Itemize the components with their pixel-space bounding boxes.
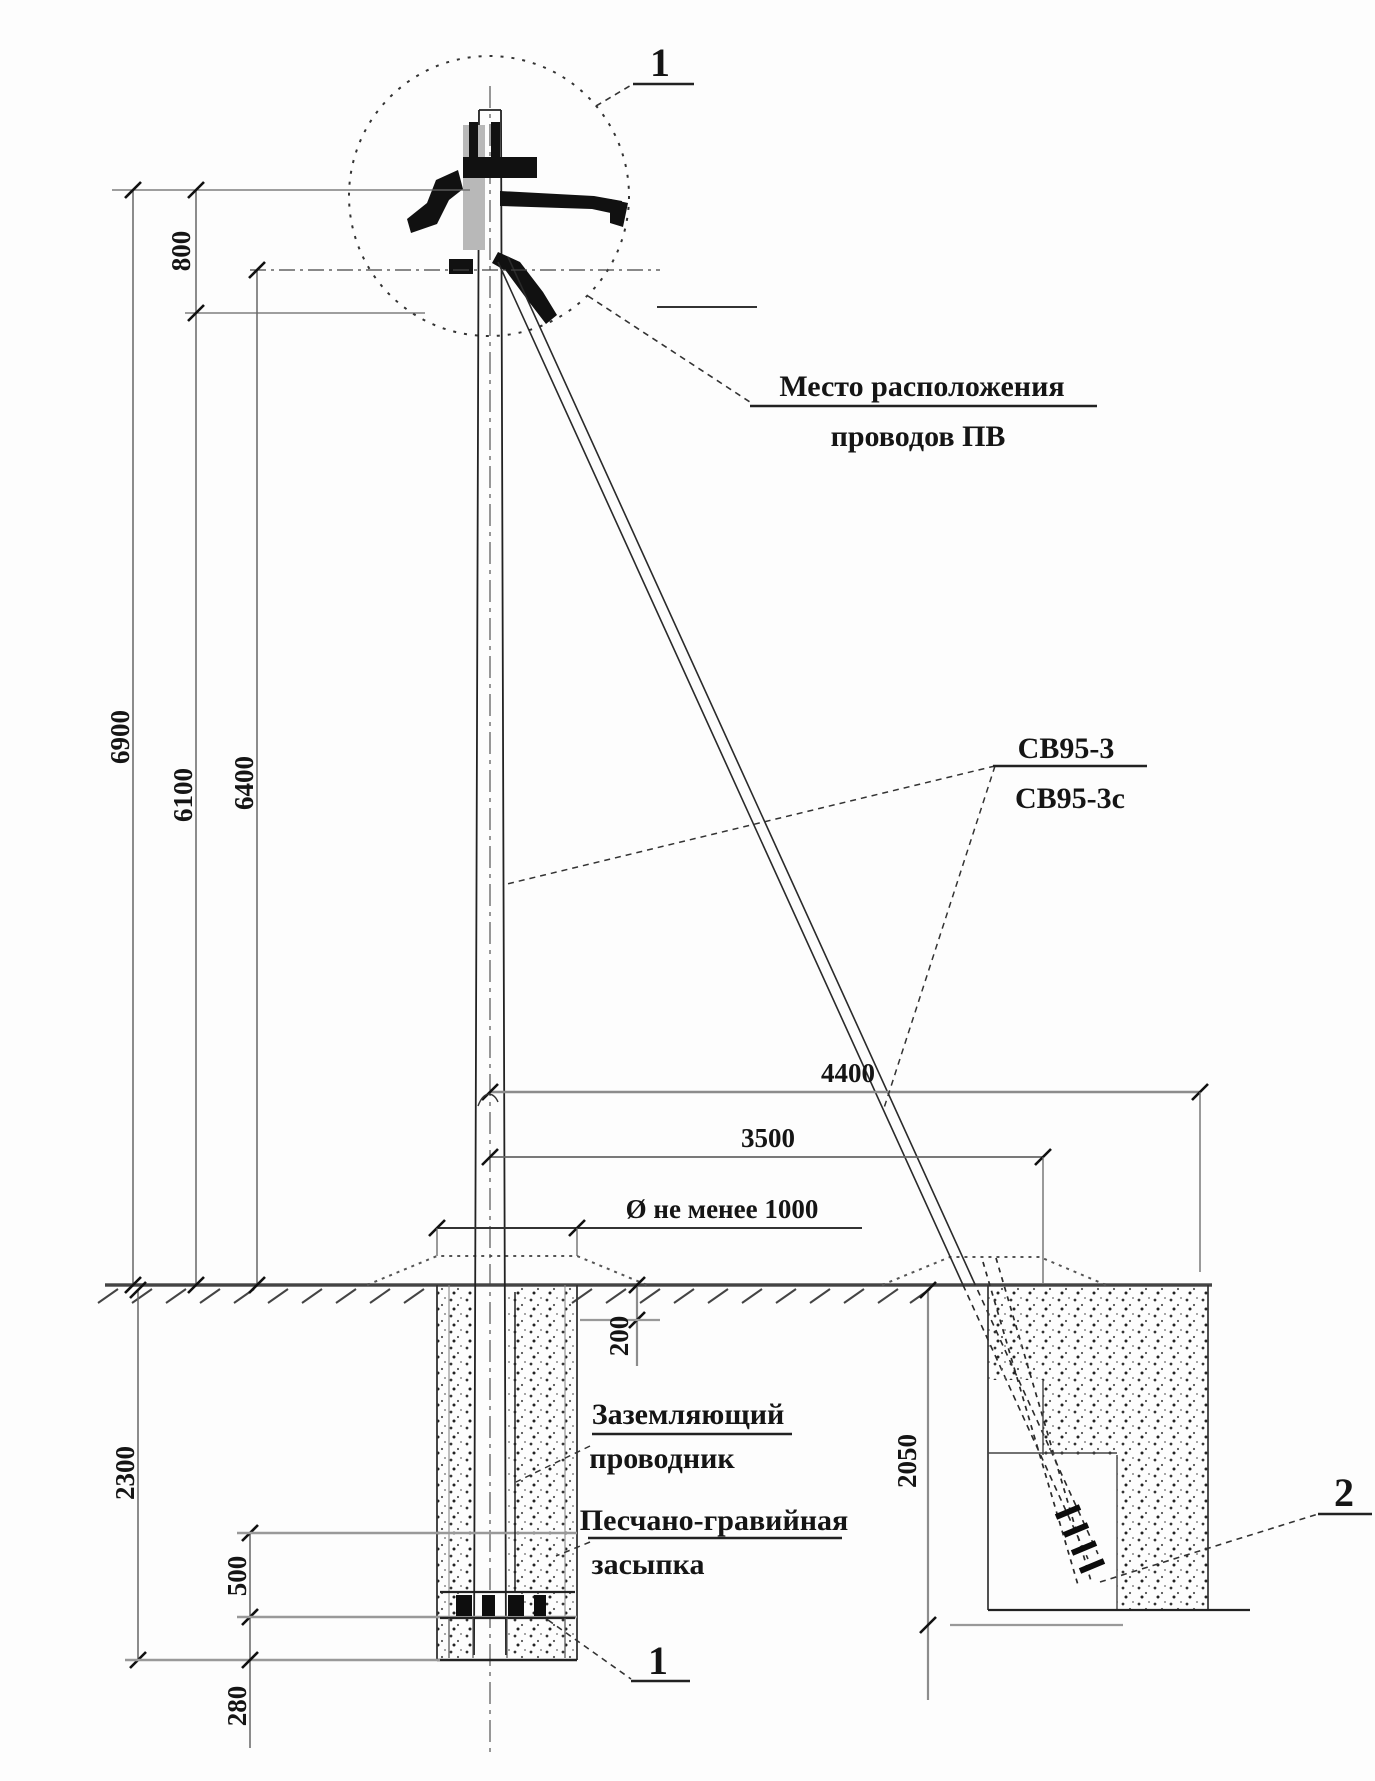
pole-break-mark	[478, 1094, 498, 1106]
left-hook	[407, 170, 463, 233]
label-backfill: Песчано-гравийная засыпка	[556, 1504, 848, 1581]
dim-4400: 4400	[478, 1058, 1208, 1272]
anchor-mound	[882, 1257, 1106, 1285]
dim-4400-label: 4400	[821, 1058, 875, 1088]
pole	[474, 86, 506, 1756]
label-pole-type: СВ95-3 СВ95-3с	[503, 732, 1147, 1108]
label-pole-type-line1: СВ95-3	[1018, 732, 1115, 765]
callout-top-1: 1	[596, 40, 694, 106]
label-wire-location-line2: проводов ПВ	[831, 420, 1006, 453]
dim-800-6100: 800 6100	[166, 182, 204, 1293]
label-backfill-line2: засыпка	[592, 1548, 705, 1581]
ground-mounds	[367, 1256, 1106, 1285]
right-arm-hook	[610, 199, 628, 227]
pole-installation-drawing: 6900 800 6100 6400 2300 500 280 4400	[0, 0, 1375, 1781]
dim-6400-label: 6400	[229, 756, 259, 810]
dim-2300: 2300	[110, 1282, 440, 1668]
label-backfill-line1: Песчано-гравийная	[580, 1504, 849, 1537]
dim-500-280: 500 280	[222, 1525, 440, 1748]
label-grounding-line2: проводник	[589, 1442, 735, 1475]
guy-line-a	[498, 262, 963, 1285]
right-arm	[500, 191, 622, 215]
pole-top-hardware	[407, 122, 628, 324]
dim-800-label: 800	[166, 231, 196, 272]
dim-6900-label: 6900	[105, 710, 135, 764]
pole-mound	[367, 1256, 647, 1285]
label-pole-type-line2: СВ95-3с	[1015, 782, 1125, 815]
anchor-plate-bars	[1056, 1507, 1104, 1571]
dim-pit-diameter: Ø не менее 1000	[429, 1194, 862, 1256]
dim-6900: 6900	[105, 182, 141, 1293]
label-grounding-line1: Заземляющий	[592, 1398, 785, 1431]
callout-top-1-label: 1	[650, 40, 670, 85]
dim-3500-label: 3500	[741, 1123, 795, 1153]
dim-500-label: 500	[222, 1556, 252, 1597]
label-wire-location: Место расположения проводов ПВ	[588, 296, 1097, 453]
dim-200-label: 200	[604, 1316, 634, 1357]
lower-clamp	[449, 259, 473, 274]
dim-6400: 6400	[229, 262, 265, 1293]
dim-2050-label: 2050	[892, 1434, 922, 1488]
callout-bottom-1-label: 1	[648, 1638, 668, 1683]
anchor-foundation	[988, 1285, 1250, 1610]
dim-diameter-label: Ø не менее 1000	[626, 1194, 819, 1224]
clamp-band	[463, 157, 537, 178]
pole-foundation	[437, 1285, 577, 1660]
drawing-svg: 6900 800 6100 6400 2300 500 280 4400	[0, 0, 1375, 1781]
dim-6100-label: 6100	[168, 768, 198, 822]
label-wire-location-line1: Место расположения	[779, 370, 1064, 403]
dim-2300-label: 2300	[110, 1446, 140, 1500]
dim-200: 200	[580, 1277, 660, 1366]
callout-anchor-2-label: 2	[1334, 1470, 1354, 1515]
dim-280-label: 280	[222, 1686, 252, 1727]
guy-wire	[498, 257, 1104, 1585]
